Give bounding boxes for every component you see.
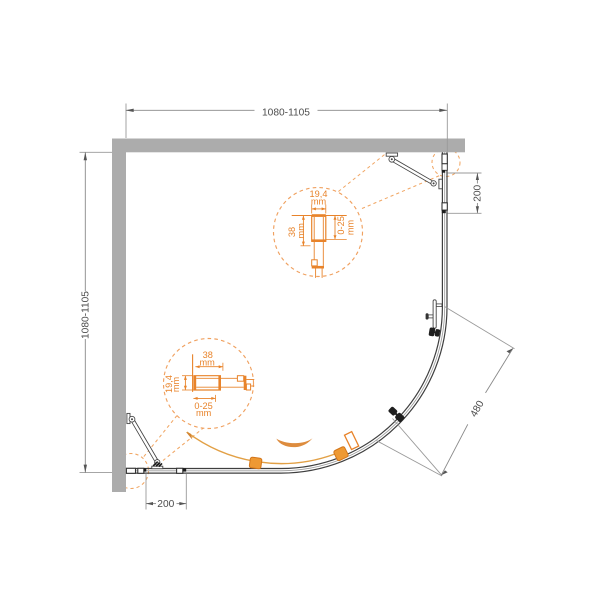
svg-text:mm: mm [196, 408, 212, 418]
svg-text:1080-1105: 1080-1105 [81, 291, 92, 339]
svg-text:mm: mm [296, 223, 306, 239]
svg-text:1080-1105: 1080-1105 [262, 108, 310, 119]
svg-text:mm: mm [200, 358, 216, 368]
svg-text:200: 200 [157, 499, 174, 510]
svg-text:mm: mm [171, 377, 181, 393]
svg-text:mm: mm [311, 197, 327, 207]
svg-text:200: 200 [472, 184, 483, 201]
svg-text:mm: mm [345, 220, 355, 236]
